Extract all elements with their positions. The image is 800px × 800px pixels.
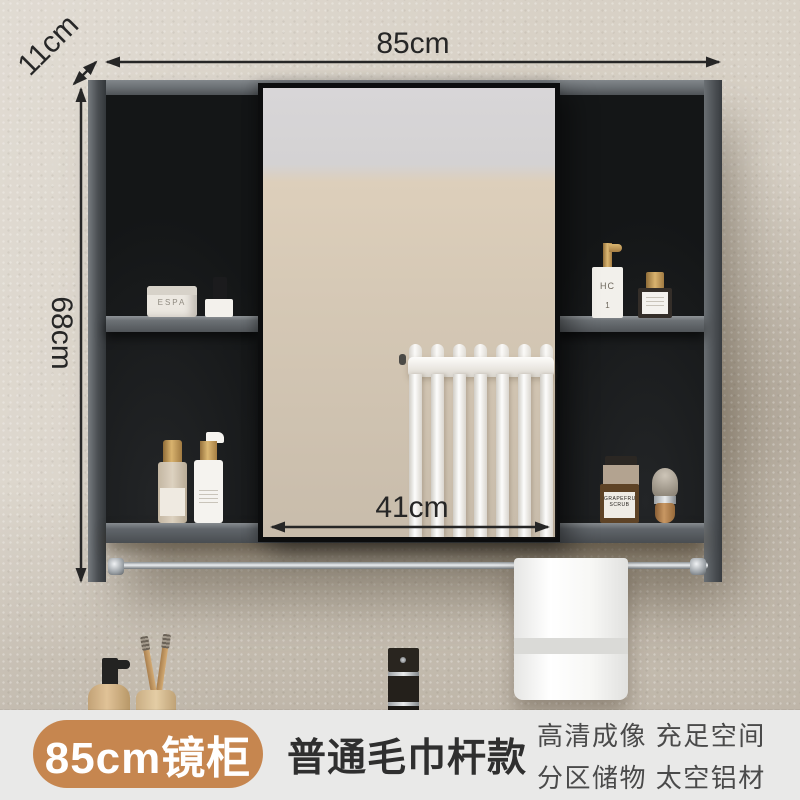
small-bottle [205,299,233,317]
mirror-cabinet: ESPA HC 1 GRAPEFRUIT SCRUB [88,80,722,582]
cream-jar: ESPA [147,286,197,317]
lotion-bottle-label [160,488,185,516]
mirror-door [258,83,560,542]
pump-bottle [194,460,223,523]
feature-line: 分区储物 太空铝材 [537,758,766,795]
variant-title: 普通毛巾杆款 [287,710,527,800]
info-bar: 85cm镜柜 普通毛巾杆款 高清成像 充足空间 分区储物 太空铝材 [0,710,800,800]
radiator-tubes [408,374,554,537]
towel-band [514,638,628,654]
stacked-jar-top [603,465,639,485]
soap-dispenser-spout [112,660,130,669]
faucet-button [400,657,406,663]
feature-list: 高清成像 充足空间 分区储物 太空铝材 [537,710,766,800]
towel-bar-right-bracket [690,558,706,575]
pump-bottle-gold-collar [200,441,217,462]
small-bottle-cap [213,277,227,300]
cabinet-left-panel [88,80,106,582]
left-middle-shelf [106,316,258,332]
towel-bar-left-bracket [108,558,124,575]
perfume-bottle-cap [646,272,664,289]
amber-jar: GRAPEFRUIT SCRUB [600,484,639,523]
perfume-bottle [638,288,672,318]
shaving-brush-bristles [652,468,678,498]
hc-bottle: HC 1 [592,267,623,318]
cream-jar-label: ESPA [147,298,197,307]
lotion-bottle-gold-cap [163,440,182,463]
product-image: ESPA HC 1 GRAPEFRUIT SCRUB [0,0,800,800]
perfume-label-lines [646,297,664,309]
faucet-body [388,676,419,702]
cabinet-right-panel [704,80,722,582]
white-towel [514,558,628,700]
hc-bottle-number: 1 [592,301,623,310]
lotion-bottle [158,462,187,523]
faucet-fixture [388,648,419,672]
right-middle-shelf [558,316,704,332]
soap-dispenser [88,684,130,710]
hc-bottle-label: HC [592,281,623,291]
pump-bottle-label-lines [199,490,218,504]
radiator-valve-reflection [399,354,406,365]
cream-jar-lid [147,286,197,295]
hc-bottle-pump-spout [609,244,622,252]
amber-jar-label: GRAPEFRUIT SCRUB [604,492,635,518]
size-badge: 85cm镜柜 [33,720,263,788]
feature-line: 高清成像 充足空间 [537,716,766,753]
shaving-brush-handle [655,503,675,523]
radiator-reflection [408,344,554,537]
toothbrush-cup [136,690,176,710]
perfume-bottle-label [642,292,668,314]
